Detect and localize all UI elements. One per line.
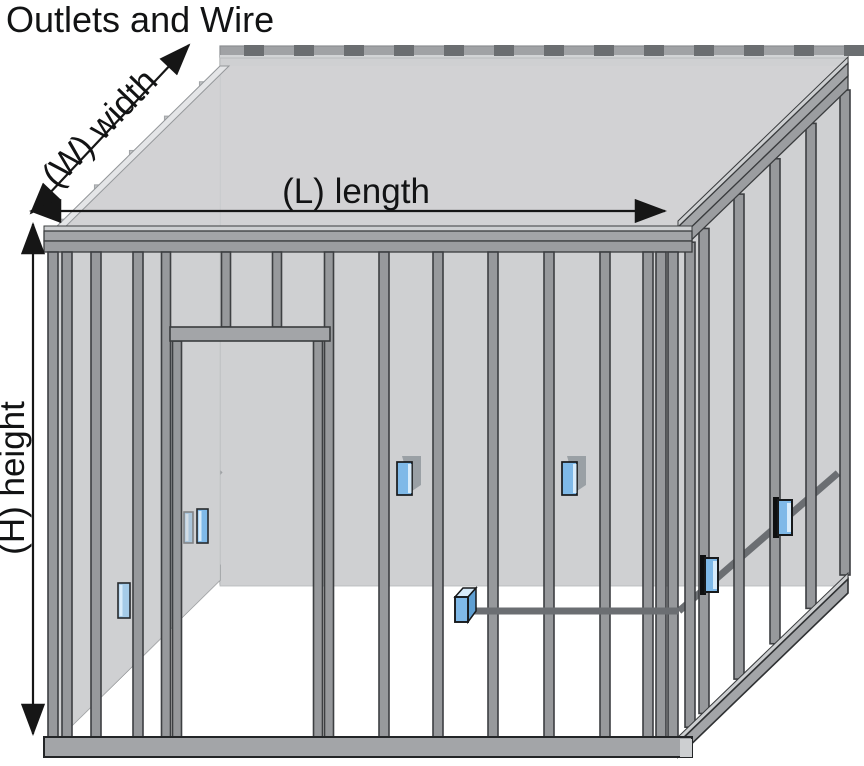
ceiling-joist-end [294,45,314,56]
ceiling-joist-end [744,45,764,56]
ceiling-joist-end [494,45,514,56]
right-stud [840,90,850,575]
ceiling-joist-end [594,45,614,56]
right-wall-outlet-2 [773,497,792,538]
diagram-title: Outlets and Wire [6,0,274,40]
ceiling-joist-end [344,45,364,56]
framing-diagram-stage: Outlets and Wire (L) length (W) width (H… [0,0,864,766]
door-jack-stud [173,341,182,737]
left-wall-outlet-2 [184,512,193,543]
right-stud [699,228,709,713]
length-label: (L) length [282,172,430,211]
front-bottom-plate [44,737,692,757]
front-top-plate-upper [44,231,692,241]
front-stud [48,252,58,737]
ceiling-joist-end [244,45,264,56]
right-stud [685,242,695,727]
left-wall-outlet-3 [197,509,208,543]
left-wall-outlet-1 [118,583,130,618]
front-stud [433,252,443,737]
front-stud [133,252,143,737]
ceiling-joist-end [544,45,564,56]
height-label: (H) height [0,401,32,555]
front-stud [62,252,72,737]
outlet-face-highlight [713,561,717,589]
door-header [170,327,330,341]
outlet-face-highlight [408,464,412,493]
ceiling-joist-end [694,45,714,56]
front-stud [379,252,389,737]
right-wall-outlet-1 [700,555,718,595]
front-stud [656,252,666,737]
outlet-face-highlight [199,511,202,541]
front-stud [643,252,653,737]
framing-diagram: Outlets and Wire (L) length (W) width (H… [0,0,864,766]
outlet-face-highlight [120,585,123,616]
ceiling-joist-end [844,45,864,56]
outlet-face-highlight [186,514,189,541]
front-top-plate-lower [44,241,692,252]
front-stud [91,252,101,737]
front-stud [488,252,498,737]
door-jack-stud [314,341,323,737]
front-stud [544,252,554,737]
ceiling-joist-end [644,45,664,56]
outlet-face-highlight [787,503,791,532]
ceiling-joist-end [444,45,464,56]
right-stud [770,159,780,644]
door-cripple-stud [222,252,231,327]
front-bottom-plate-end-cap [680,739,692,757]
door-king-stud [162,252,171,737]
right-stud [734,194,744,679]
door-cripple-stud [273,252,282,327]
right-stud [806,123,816,608]
ceiling-joist-end [794,45,814,56]
door-king-stud [325,252,334,737]
outlet-face [455,597,468,622]
front-stud [668,252,678,737]
front-wall-outlet [455,588,476,622]
front-stud [600,252,610,737]
ceiling-joist-end [394,45,414,56]
outlet-face-highlight [573,464,577,493]
